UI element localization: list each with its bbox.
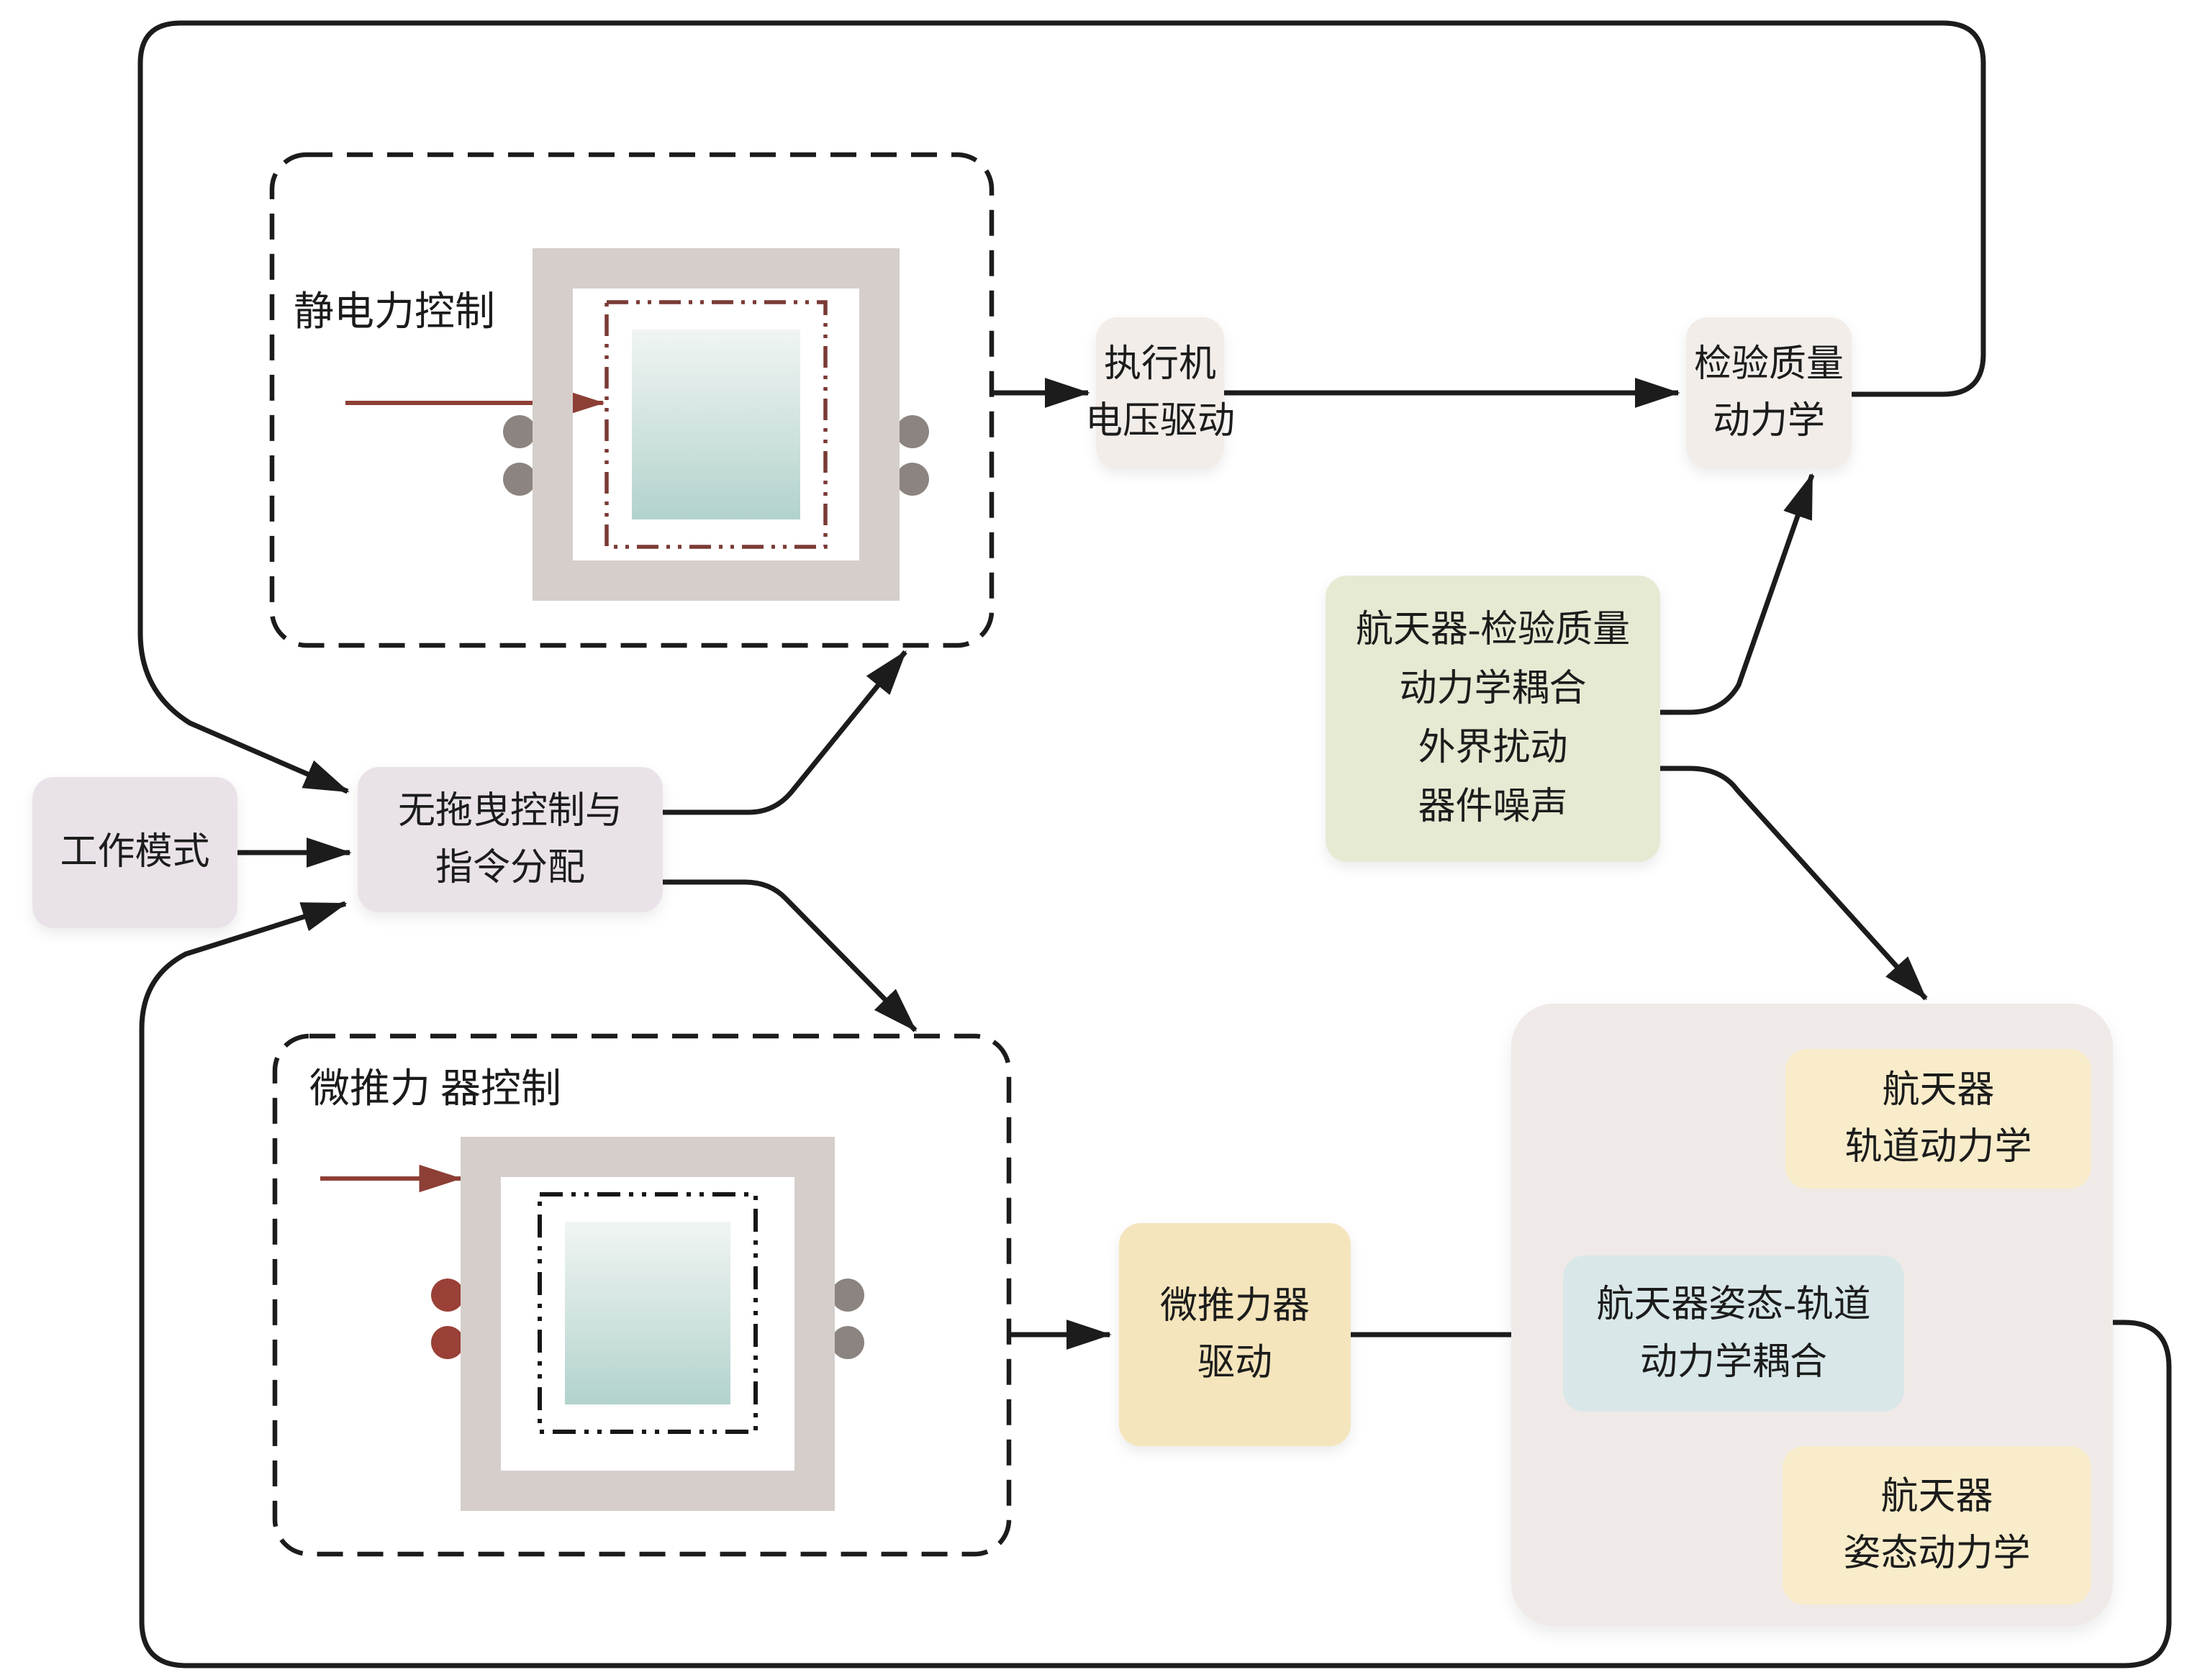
electrode-dot	[503, 463, 536, 496]
electrode-dot	[896, 415, 929, 448]
node-attitude-dynamics: 航天器 姿态动力学	[1783, 1446, 2091, 1604]
node-work-mode: 工作模式	[32, 777, 237, 928]
node-test-mass-dynamics: 检验质量 动力学	[1686, 317, 1852, 468]
electrode-dot	[503, 415, 536, 448]
node-testmass-line1: 检验质量	[1694, 336, 1844, 393]
electrode-dot	[896, 463, 929, 496]
label-thruster-line2: 器控制	[440, 1067, 561, 1112]
arrow-dragfree-to-electrostatic-box	[663, 652, 905, 812]
diagram-canvas: 工作模式 无拖曳控制与 指令分配 执行机 电压驱动 检验质量 动力学 航天器-检…	[0, 0, 2210, 1680]
node-attitude-line2: 姿态动力学	[1843, 1525, 2030, 1582]
node-orbit-line2: 轨道动力学	[1844, 1119, 2032, 1176]
test-mass-cube-bottom	[565, 1222, 730, 1404]
node-attorbit-line1: 航天器姿态-轨道	[1596, 1276, 1870, 1333]
arrow-noise-to-container	[1659, 768, 1926, 999]
node-attitude-orbit-coupling: 航天器姿态-轨道 动力学耦合	[1563, 1256, 1904, 1412]
node-thrusterdrive-line2: 驱动	[1197, 1335, 1272, 1391]
node-actuator-line1: 执行机	[1104, 336, 1216, 393]
electrode-dot	[831, 1326, 864, 1359]
label-thruster-line1: 微推力	[309, 1067, 430, 1112]
node-actuator-voltage-drive: 执行机 电压驱动	[1096, 317, 1224, 468]
node-testmass-line2: 动力学	[1713, 393, 1825, 450]
thruster-dot-red	[431, 1326, 464, 1359]
test-mass-cube-top	[632, 330, 800, 519]
node-coupling-line2: 动力学耦合	[1399, 660, 1586, 719]
arrow-noise-to-testmass	[1659, 475, 1812, 712]
node-coupling-line4: 器件噪声	[1418, 778, 1567, 837]
thruster-dot-red	[431, 1279, 464, 1312]
label-electrostatic-text: 静电力控制	[294, 290, 495, 335]
node-drag-free-control: 无拖曳控制与 指令分配	[358, 767, 663, 912]
node-orbit-dynamics: 航天器 轨道动力学	[1785, 1049, 2091, 1189]
node-attorbit-line2: 动力学耦合	[1640, 1334, 1827, 1391]
label-micro-thruster-control: 微推力 器控制	[309, 1059, 561, 1120]
node-coupling-disturbance-noise: 航天器-检验质量 动力学耦合 外界扰动 器件噪声	[1326, 576, 1660, 862]
node-drag-free-line2: 指令分配	[435, 840, 585, 896]
arrow-dragfree-to-thruster-box	[663, 882, 915, 1030]
node-actuator-line2: 电压驱动	[1085, 393, 1235, 450]
node-work-mode-label: 工作模式	[60, 824, 209, 881]
node-attitude-line1: 航天器	[1880, 1468, 1993, 1525]
label-electrostatic-control: 静电力控制	[294, 282, 495, 342]
node-orbit-line1: 航天器	[1882, 1062, 1994, 1119]
node-thrusterdrive-line1: 微推力器	[1160, 1278, 1310, 1335]
node-drag-free-line1: 无拖曳控制与	[398, 783, 622, 840]
node-coupling-line3: 外界扰动	[1418, 719, 1567, 778]
node-thruster-drive: 微推力器 驱动	[1119, 1223, 1351, 1446]
electrode-dot	[831, 1279, 864, 1312]
node-coupling-line1: 航天器-检验质量	[1356, 601, 1630, 660]
